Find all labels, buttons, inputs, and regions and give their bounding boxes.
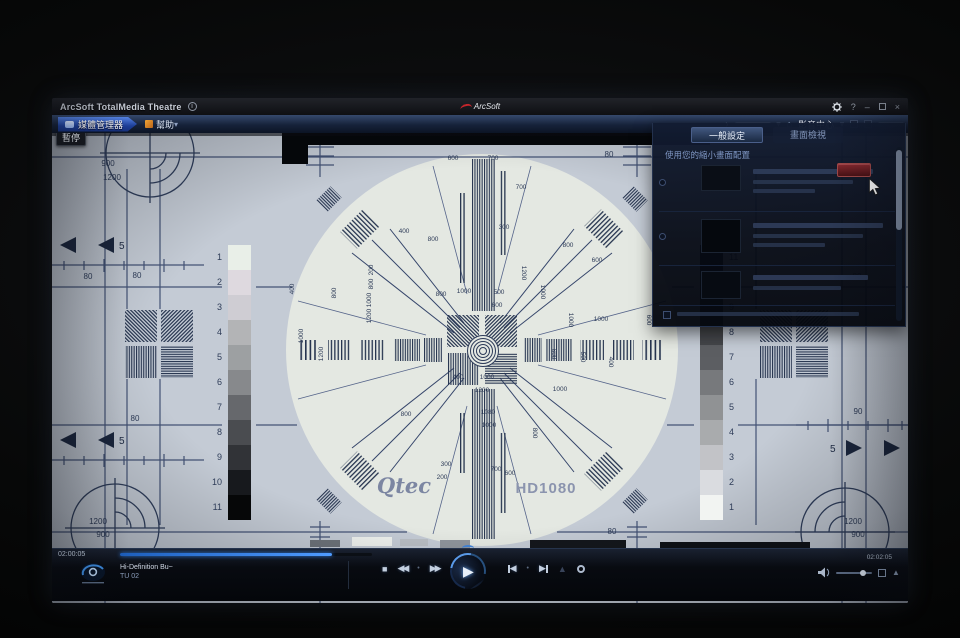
- grayscale-step-label: 5: [198, 345, 222, 370]
- grayscale-step-label: 8: [198, 420, 222, 445]
- eject-button[interactable]: ▲: [558, 564, 567, 574]
- grayscale-step: [228, 345, 251, 370]
- option-text: [753, 189, 815, 193]
- minimize-button[interactable]: –: [865, 102, 870, 112]
- grayscale-step: [228, 370, 251, 395]
- gear-icon[interactable]: [832, 102, 842, 112]
- panel-scrollbar[interactable]: [896, 147, 902, 321]
- grayscale-step: [228, 470, 251, 495]
- grayscale-step-label: 4: [198, 320, 222, 345]
- help-caret-icon[interactable]: ▾: [174, 120, 178, 129]
- chapter-dot: •: [527, 565, 529, 572]
- arcsoft-logo: ArcSoft: [52, 102, 908, 111]
- grayscale-left-bar: [228, 245, 251, 520]
- grayscale-step: [228, 295, 251, 320]
- grayscale-step: [700, 395, 723, 420]
- grayscale-step: [228, 420, 251, 445]
- photo-background: ArcSoft TotalMedia Theatre i ArcSoft ? –…: [0, 0, 960, 638]
- option-text: [753, 275, 868, 280]
- grayscale-step-label: 7: [729, 345, 749, 370]
- grayscale-step-label: 1: [729, 495, 749, 520]
- grayscale-step-label: 10: [198, 470, 222, 495]
- tab-general-settings[interactable]: 一般設定: [691, 127, 763, 143]
- stop-button[interactable]: ■: [382, 564, 387, 574]
- grayscale-step: [700, 345, 723, 370]
- grayscale-step-label: 5: [729, 395, 749, 420]
- grayscale-step: [228, 495, 251, 520]
- divider: [348, 561, 349, 589]
- fast-forward-button[interactable]: ▶▶: [430, 563, 440, 574]
- next-chapter-button[interactable]: ▶: [539, 563, 548, 574]
- grayscale-step: [228, 445, 251, 470]
- panel-option-row[interactable]: [657, 267, 895, 305]
- grayscale-step-label: 11: [198, 495, 222, 520]
- grayscale-step: [700, 470, 723, 495]
- radio-icon[interactable]: [659, 179, 666, 186]
- disc-title: Hi-Definition Bu~: [120, 563, 173, 572]
- progress-fill: [120, 553, 332, 556]
- grayscale-step: [700, 370, 723, 395]
- total-time: 02:02:05: [867, 554, 892, 561]
- speaker-icon[interactable]: [818, 567, 830, 578]
- option-text: [753, 223, 883, 228]
- disc-subtitle: TU 02: [120, 572, 173, 581]
- help-button[interactable]: ?: [851, 102, 856, 112]
- play-hat-icon: [462, 545, 474, 551]
- playback-control-bar: 02:00:05 02:02:05 Hi-Definition Bu~ TU 0…: [52, 548, 908, 601]
- volume-controls: ▲: [818, 567, 900, 578]
- grayscale-step: [700, 495, 723, 520]
- grayscale-step-label: 3: [729, 445, 749, 470]
- panel-option-row[interactable]: [657, 213, 895, 265]
- grayscale-step-label: 2: [729, 470, 749, 495]
- grayscale-step-label: 1: [198, 245, 222, 270]
- grayscale-step: [228, 245, 251, 270]
- grayscale-step: [700, 420, 723, 445]
- checkbox-icon[interactable]: [663, 311, 671, 319]
- grayscale-step-label: 6: [729, 370, 749, 395]
- grayscale-step-label: 9: [198, 445, 222, 470]
- panel-heading: 使用您的縮小畫面配置: [665, 149, 750, 161]
- grayscale-step: [228, 320, 251, 345]
- divider: [659, 305, 895, 306]
- option-text: [753, 286, 841, 290]
- divider: [659, 211, 895, 212]
- logo-swoosh-icon: [460, 104, 473, 111]
- fullscreen-button[interactable]: [878, 569, 886, 577]
- previous-chapter-button[interactable]: ◀: [508, 563, 517, 574]
- settings-panel: 一般設定 畫面檢視 使用您的縮小畫面配置: [652, 123, 906, 327]
- titlebar: ArcSoft TotalMedia Theatre i ArcSoft ? –…: [52, 98, 908, 115]
- popup-button[interactable]: ▲: [892, 568, 900, 577]
- tab-help[interactable]: 幫助: [156, 118, 174, 131]
- grayscale-step: [228, 270, 251, 295]
- volume-slider[interactable]: [836, 572, 872, 574]
- rewind-button[interactable]: ◀◀: [397, 563, 407, 574]
- grayscale-step-label: 6: [198, 370, 222, 395]
- divider: [659, 265, 895, 266]
- tab-media-manager[interactable]: 媒體管理器: [58, 117, 137, 132]
- play-icon: ▶: [463, 563, 474, 580]
- grayscale-step: [228, 395, 251, 420]
- option-thumbnail: [701, 271, 741, 299]
- play-button[interactable]: ▶: [448, 551, 488, 591]
- radio-icon[interactable]: [659, 233, 666, 240]
- option-text: [753, 180, 853, 184]
- option-thumbnail: [701, 219, 741, 253]
- tab-view-settings[interactable]: 畫面檢視: [773, 127, 843, 143]
- snapshot-button[interactable]: [577, 565, 585, 573]
- grayscale-step: [700, 445, 723, 470]
- grayscale-step-label: 4: [729, 420, 749, 445]
- monitor-screen: ArcSoft TotalMedia Theatre i ArcSoft ? –…: [52, 98, 908, 603]
- option-text: [753, 234, 863, 238]
- footer-text: [677, 312, 859, 316]
- media-manager-icon: [65, 121, 74, 128]
- volume-knob[interactable]: [860, 570, 866, 576]
- seek-bar[interactable]: [120, 553, 372, 556]
- close-button[interactable]: ×: [895, 102, 900, 112]
- disc-info: Hi-Definition Bu~ TU 02: [120, 563, 173, 581]
- grayscale-step-label: 7: [198, 395, 222, 420]
- scrollbar-thumb[interactable]: [896, 150, 902, 230]
- grayscale-step-label: 2: [198, 270, 222, 295]
- next-bar-icon: [546, 565, 548, 573]
- bluray-logo: [78, 562, 112, 586]
- panel-red-button[interactable]: [837, 163, 871, 177]
- grayscale-left-labels: 1234567891011: [198, 245, 222, 520]
- grayscale-step-label: 3: [198, 295, 222, 320]
- option-text: [753, 243, 825, 247]
- maximize-button[interactable]: [879, 103, 886, 110]
- mouse-cursor: [868, 178, 882, 196]
- elapsed-time: 02:00:05: [58, 551, 85, 558]
- speed-dot: •: [417, 565, 419, 572]
- option-thumbnail: [701, 165, 741, 191]
- help-book-icon: [145, 120, 153, 128]
